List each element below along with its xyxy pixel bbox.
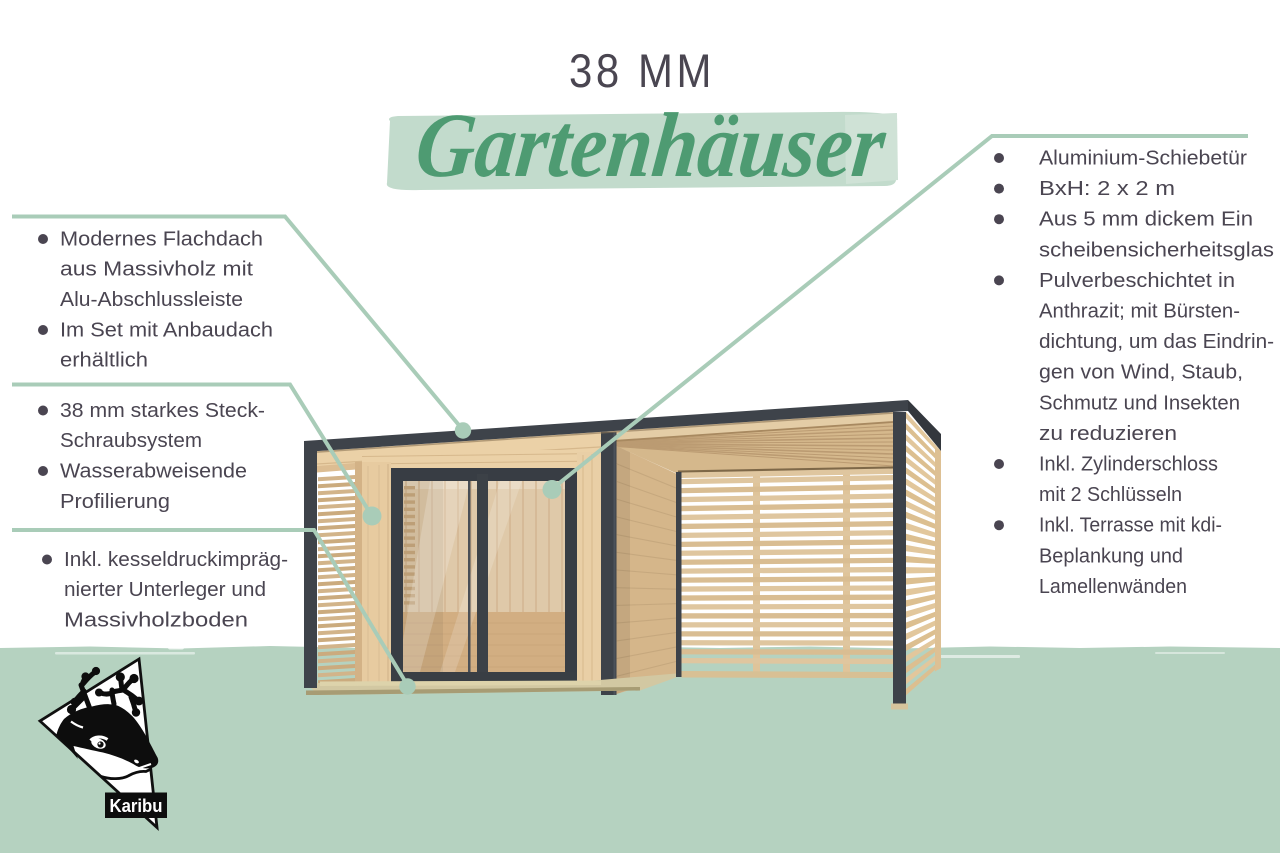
svg-text:Aus 5 mm dickem Ein: Aus 5 mm dickem Ein xyxy=(1039,209,1253,231)
svg-text:Inkl. kesseldruckimpräg-: Inkl. kesseldruckimpräg- xyxy=(64,549,288,571)
svg-text:mit 2 Schlüsseln: mit 2 Schlüsseln xyxy=(1039,484,1182,506)
svg-text:Gartenhäuser: Gartenhäuser xyxy=(411,94,891,196)
svg-text:Beplankung und: Beplankung und xyxy=(1039,545,1183,567)
svg-text:Schmutz und Insekten: Schmutz und Insekten xyxy=(1039,392,1240,414)
svg-text:Inkl. Terrasse mit kdi-: Inkl. Terrasse mit kdi- xyxy=(1039,515,1222,537)
svg-text:Anthrazit; mit Bürsten-: Anthrazit; mit Bürsten- xyxy=(1039,301,1240,323)
svg-text:Modernes Flachdach: Modernes Flachdach xyxy=(60,229,263,251)
svg-text:Inkl. Zylinderschloss: Inkl. Zylinderschloss xyxy=(1039,454,1218,476)
svg-text:Pulverbeschichtet in: Pulverbeschichtet in xyxy=(1039,270,1235,292)
svg-text:Alu-Abschlussleiste: Alu-Abschlussleiste xyxy=(60,289,243,311)
svg-text:aus Massivholz mit: aus Massivholz mit xyxy=(60,259,254,281)
svg-text:Im Set mit Anbaudach: Im Set mit Anbaudach xyxy=(60,320,273,342)
svg-text:38 MM: 38 MM xyxy=(569,44,715,97)
svg-text:dichtung, um das Eindrin-: dichtung, um das Eindrin- xyxy=(1039,331,1274,353)
svg-text:erhältlich: erhältlich xyxy=(60,350,148,372)
svg-text:Aluminium-Schiebetür: Aluminium-Schiebetür xyxy=(1039,148,1247,170)
svg-text:Karibu: Karibu xyxy=(110,795,163,816)
svg-text:Wasserabweisende: Wasserabweisende xyxy=(60,461,247,483)
svg-text:Profilierung: Profilierung xyxy=(60,491,170,513)
svg-text:Massivholzboden: Massivholzboden xyxy=(64,610,248,632)
svg-text:nierter Unterleger und: nierter Unterleger und xyxy=(64,579,266,601)
svg-text:scheibensicherheitsglas: scheibensicherheitsglas xyxy=(1039,239,1274,261)
svg-text:BxH: 2 x 2 m: BxH: 2 x 2 m xyxy=(1039,178,1175,200)
svg-text:zu reduzieren: zu reduzieren xyxy=(1039,423,1177,445)
svg-text:Schraubsystem: Schraubsystem xyxy=(60,430,202,452)
svg-text:Lamellenwänden: Lamellenwänden xyxy=(1039,576,1187,598)
svg-text:38 mm starkes Steck-: 38 mm starkes Steck- xyxy=(60,400,265,422)
svg-text:gen von Wind, Staub,: gen von Wind, Staub, xyxy=(1039,362,1243,384)
